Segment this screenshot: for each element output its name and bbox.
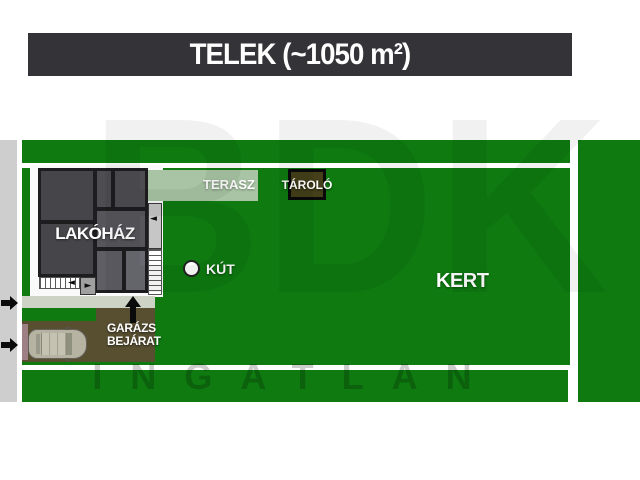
arrow-up-icon [125, 296, 141, 323]
grass-bottom-band [22, 370, 568, 402]
grass-right-strip [578, 140, 640, 402]
title-bar: TELEK (~1050 m²) [28, 33, 572, 76]
stairs-right [148, 249, 162, 295]
arrow-right-icon: ► [85, 282, 92, 291]
house-room [94, 168, 114, 210]
arrow-left-icon: ◄ [68, 279, 75, 288]
garage-room [94, 248, 125, 293]
storage-label: TÁROLÓ [282, 178, 333, 192]
arrow-right-icon [1, 296, 18, 310]
road-strip [0, 140, 17, 402]
house-room [38, 168, 96, 223]
well-circle-icon [183, 260, 200, 277]
arrow-head [10, 338, 18, 352]
car-roof [41, 333, 67, 355]
arrow-stem [1, 300, 10, 306]
storage-box: TÁROLÓ [288, 169, 326, 200]
car-rear-window [36, 334, 40, 354]
garden-label: KERT [436, 270, 488, 293]
arrow-right-icon [1, 338, 18, 352]
terrace-label: TERASZ [196, 177, 262, 192]
car-mirror [65, 327, 69, 330]
car-windshield [67, 333, 72, 355]
grass-top-band [22, 140, 570, 163]
garage-room [123, 248, 148, 293]
garage-entrance-label: GARÁZS BEJÁRAT [107, 322, 161, 348]
arrow-head [10, 296, 18, 310]
house-label: LAKÓHÁZ [40, 224, 150, 244]
house-room [112, 168, 148, 210]
car-top-view-icon [28, 329, 87, 359]
well-label: KÚT [206, 261, 235, 277]
arrow-stem [1, 342, 10, 348]
page-title: TELEK (~1050 m²) [190, 38, 411, 72]
car-mirror [65, 358, 69, 361]
side-entry-box: ◄ [148, 203, 162, 249]
site-plan-image: TELEK (~1050 m²) ◄ ◄ ► LAKÓHÁZ TERASZ TÁ… [0, 0, 640, 480]
entry-box: ► [80, 277, 96, 295]
arrow-left-icon: ◄ [150, 215, 157, 224]
